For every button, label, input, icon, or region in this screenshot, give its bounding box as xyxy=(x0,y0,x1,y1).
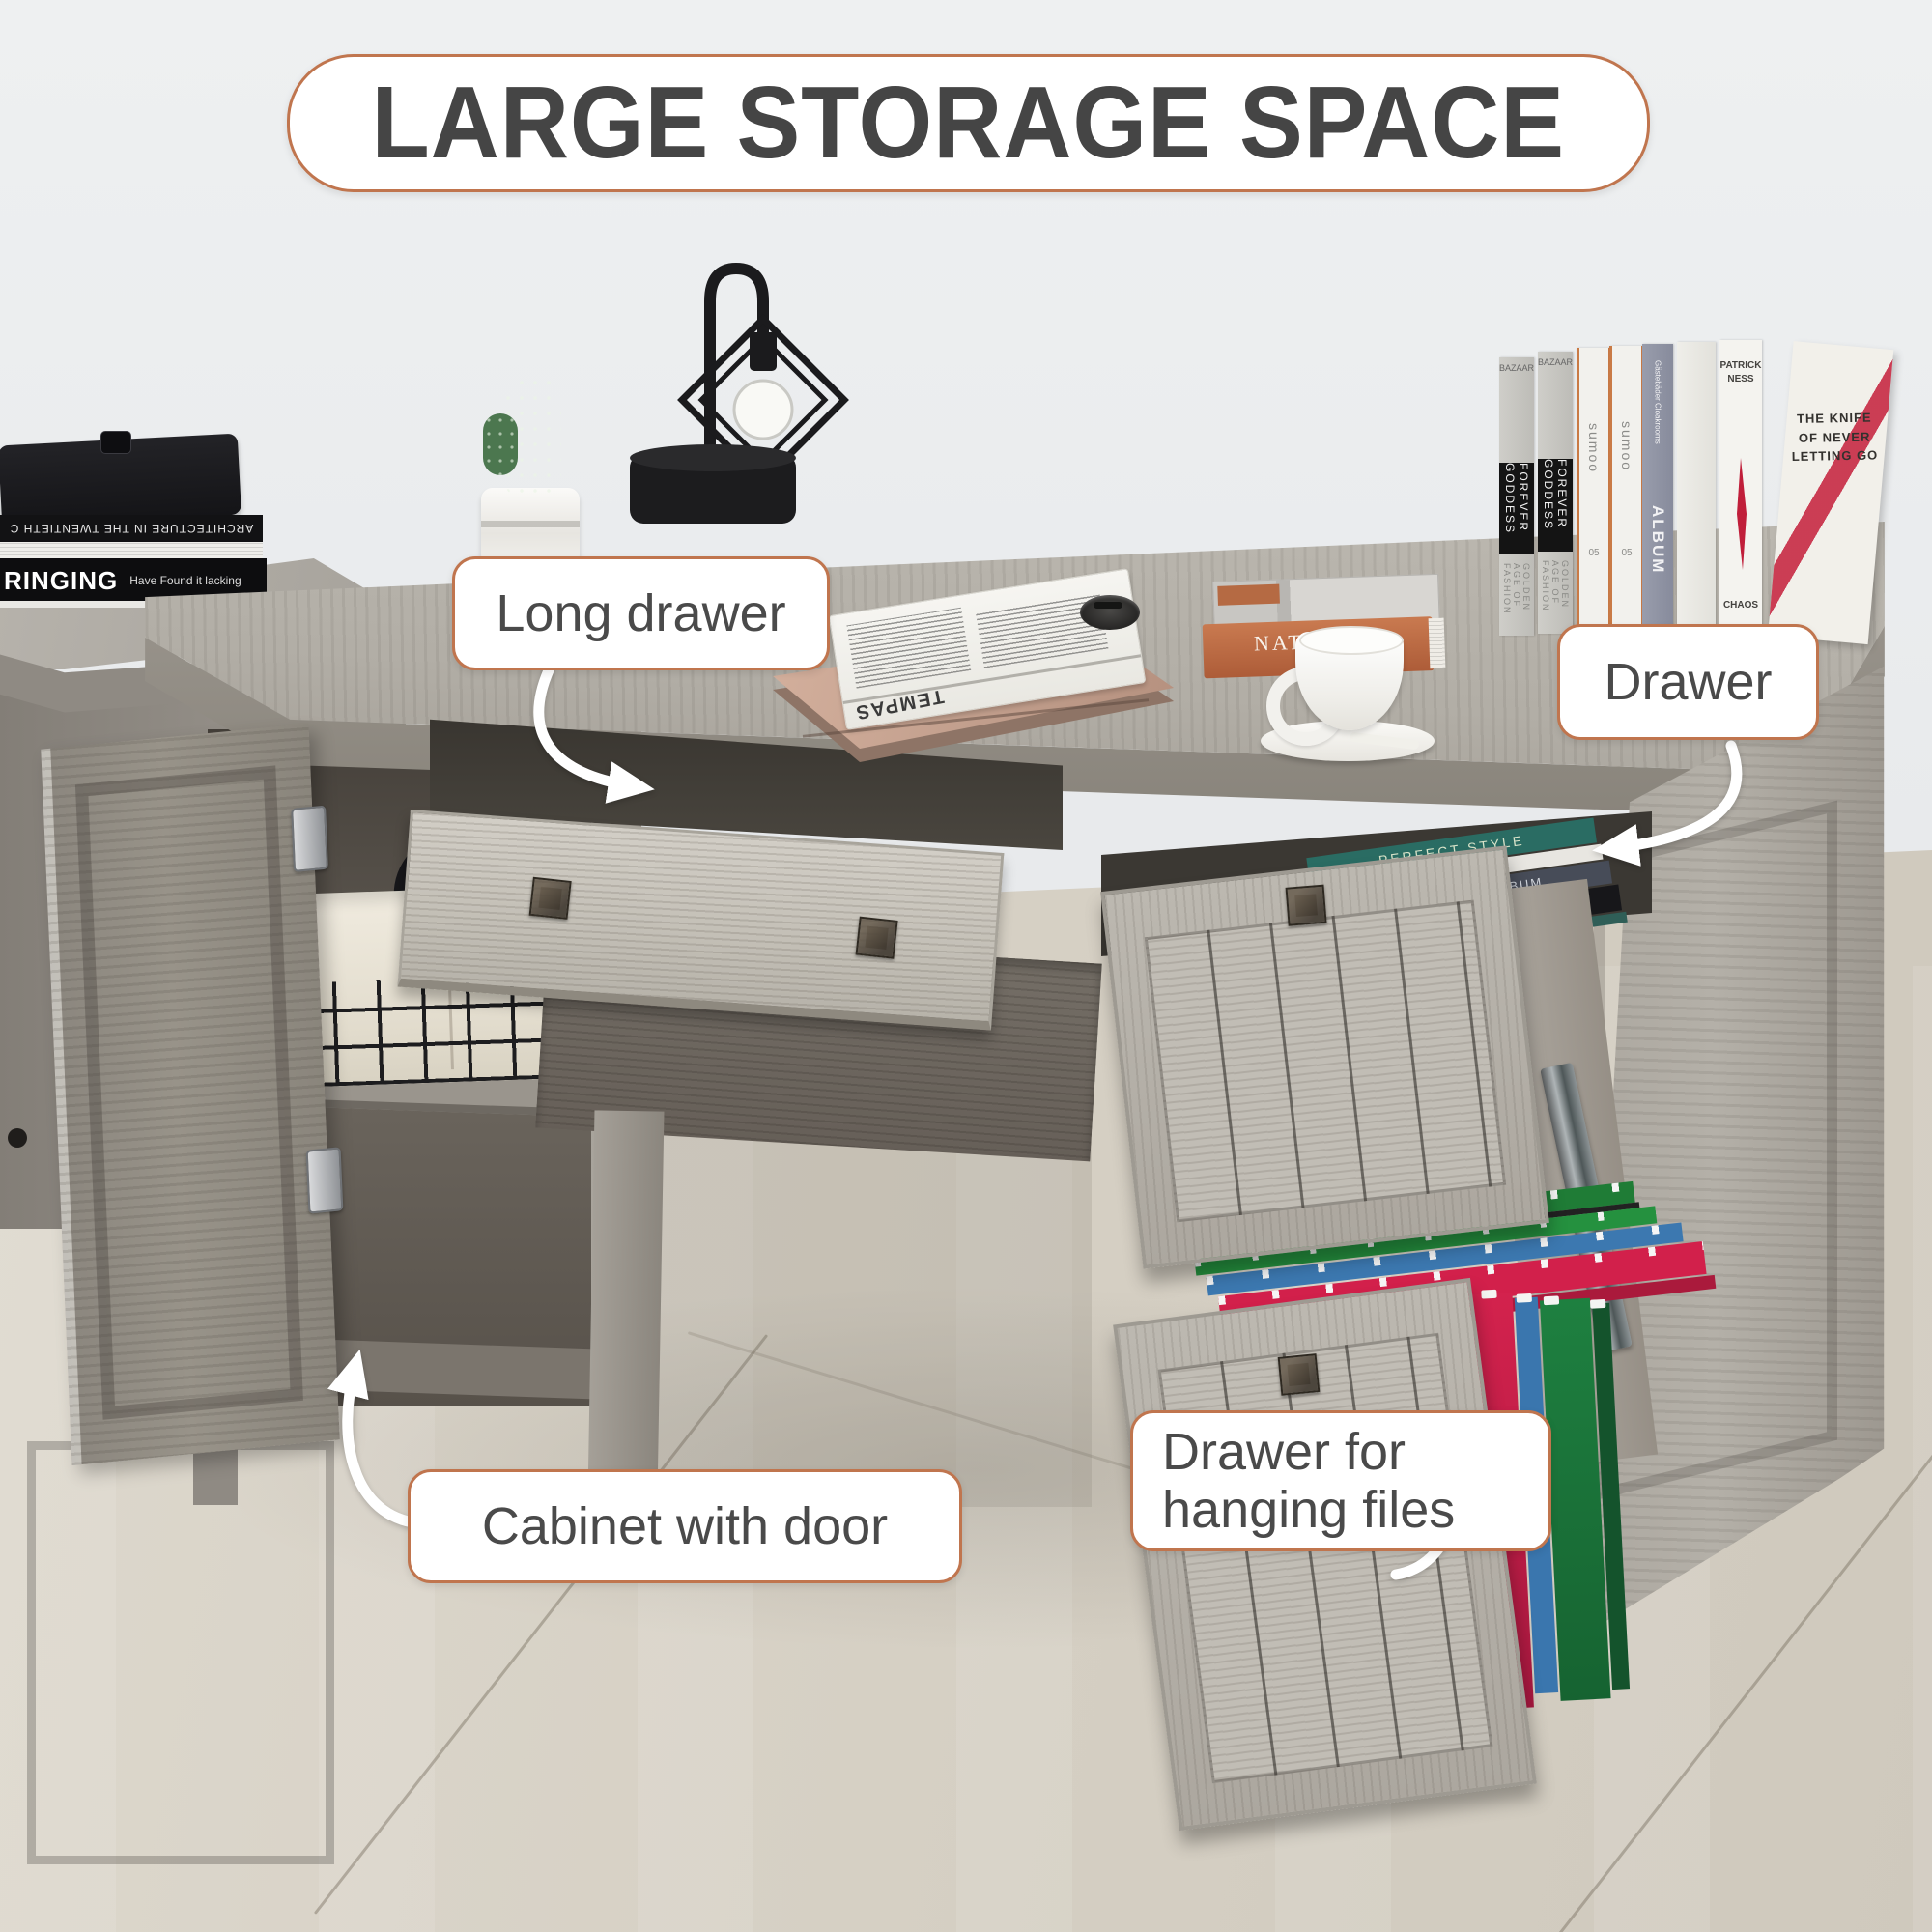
architecture-book-spine: ARCHITECTURE IN THE TWENTIETH C xyxy=(0,515,263,542)
book-spine: PATRICK NESS CHAOS xyxy=(1719,340,1762,634)
drawer-knob xyxy=(1286,885,1327,926)
side-cabinet-knob xyxy=(8,1128,27,1148)
spine-top-text: BAZAAR xyxy=(1538,357,1573,367)
book-spine: sumoo 05 xyxy=(1609,346,1644,634)
spine-number: 05 xyxy=(1612,548,1641,558)
callout-long-drawer-text: Long drawer xyxy=(496,583,785,643)
book-spine: sumoo 05 xyxy=(1577,348,1611,634)
cup-rim xyxy=(1299,626,1404,655)
book-row-on-desk: BAZAAR FOREVER GODDESS GOLDEN AGE OF FAS… xyxy=(1499,340,1897,644)
product-infographic: ARCHITECTURE IN THE TWENTIETH C RINGING … xyxy=(0,0,1932,1932)
spine-bottom-text: GOLDEN AGE OF FASHION xyxy=(1538,560,1573,631)
cactus-arm xyxy=(483,413,518,475)
coffee-cup-and-saucer xyxy=(1261,626,1439,761)
side-cabinet-door-panel xyxy=(27,1441,334,1864)
arrow-to-drawer xyxy=(1575,740,1768,885)
knife-artwork xyxy=(1727,456,1754,572)
book-spine: BAZAAR FOREVER GODDESS GOLDEN AGE OF FAS… xyxy=(1538,352,1573,634)
file-hanger-clip xyxy=(1544,1295,1559,1305)
open-cabinet-door xyxy=(41,724,339,1465)
spine-number: 05 xyxy=(1579,548,1608,558)
callout-cabinet: Cabinet with door xyxy=(408,1469,962,1583)
callout-hanging-files: Drawer for hanging files xyxy=(1130,1410,1551,1551)
callout-long-drawer: Long drawer xyxy=(452,556,830,670)
spine-author: PATRICK NESS xyxy=(1719,359,1762,386)
spine-top-text: Gästebäder Cloakrooms xyxy=(1642,344,1673,460)
drawer-knob xyxy=(856,917,898,959)
book-spine xyxy=(1677,342,1716,634)
file-hanger-clip xyxy=(1481,1290,1496,1299)
drawer-knob xyxy=(529,877,572,920)
callout-hanging-files-text: Drawer for hanging files xyxy=(1162,1423,1548,1540)
book-pages-edge xyxy=(0,542,263,559)
newspaper-text-column xyxy=(846,608,971,689)
spine-top-text: BAZAAR xyxy=(1499,363,1534,373)
door-hinge xyxy=(306,1147,344,1213)
knife-shape xyxy=(1737,458,1747,570)
arrow-to-long-drawer xyxy=(512,665,696,819)
spine-title: FOREVER GODDESS xyxy=(1499,463,1534,554)
spine-title: ALBUM xyxy=(1642,460,1673,619)
file-hanger-clip xyxy=(1517,1293,1532,1303)
drawer-knob xyxy=(1278,1353,1321,1396)
knife-book-title: THE KNIFE OF NEVER LETTING GO xyxy=(1791,408,1879,466)
knife-book-cover: THE KNIFE OF NEVER LETTING GO xyxy=(1768,341,1893,644)
lamp-socket xyxy=(750,332,777,371)
callout-cabinet-text: Cabinet with door xyxy=(482,1496,888,1556)
callout-drawer-text: Drawer xyxy=(1604,652,1772,712)
title-banner: LARGE STORAGE SPACE xyxy=(287,54,1650,192)
file-hanger-clip xyxy=(1590,1299,1605,1309)
cable-grommet xyxy=(1080,595,1140,630)
title-text: LARGE STORAGE SPACE xyxy=(372,65,1565,182)
door-hinge xyxy=(291,806,328,872)
callout-drawer: Drawer xyxy=(1557,624,1819,740)
desk-center-leg xyxy=(588,1110,665,1497)
spine-title: CHAOS xyxy=(1719,600,1762,611)
book-spine: Gästebäder Cloakrooms ALBUM xyxy=(1642,344,1673,634)
spine-title: FOREVER GODDESS xyxy=(1538,459,1573,552)
spine-bottom-text: GOLDEN AGE OF FASHION xyxy=(1499,563,1534,633)
spine-title: sumoo xyxy=(1612,346,1641,548)
notebook-clasp xyxy=(100,431,131,454)
drawer-plank-panel xyxy=(1145,900,1506,1223)
ringing-book-title: RINGING xyxy=(4,566,118,596)
geometric-desk-lamp xyxy=(570,243,860,577)
architecture-book: ARCHITECTURE IN THE TWENTIETH C xyxy=(0,515,263,559)
right-top-drawer-front xyxy=(1100,845,1549,1268)
door-recessed-panel xyxy=(75,765,303,1419)
ringing-book-subtitle: Have Found it lacking xyxy=(129,574,241,587)
book-spine: BAZAAR FOREVER GODDESS GOLDEN AGE OF FAS… xyxy=(1499,357,1534,636)
lamp-bulb xyxy=(734,381,792,439)
spine-title: sumoo xyxy=(1579,348,1608,548)
lamp-base-top xyxy=(630,444,796,471)
